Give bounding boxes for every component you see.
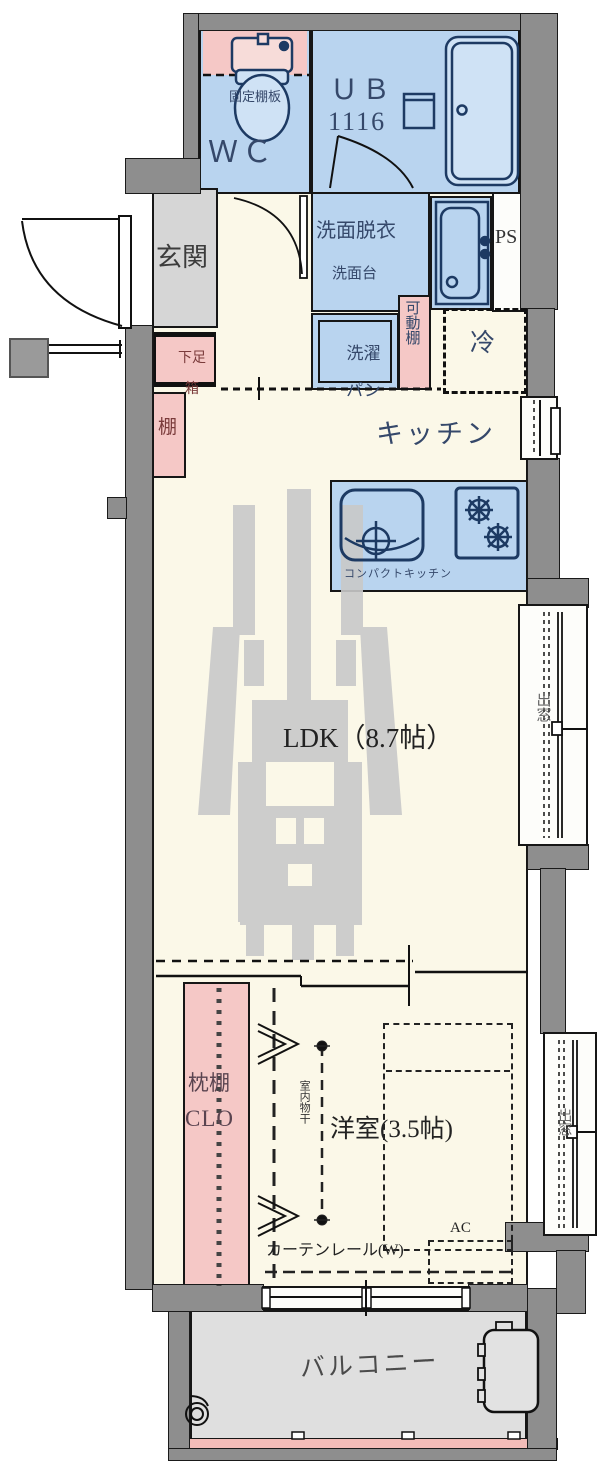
vanity-label: 洗面台 xyxy=(332,266,377,283)
bedroom-label: 洋室(3.5帖) xyxy=(330,1116,453,1144)
movable-shelf-label: 可動棚 xyxy=(403,300,420,388)
kitchen-label: キッチン xyxy=(376,420,496,450)
wall-right-1 xyxy=(527,308,555,398)
shoe-box-label: 下足 箱 xyxy=(158,336,212,413)
ub-label: ＵＢ xyxy=(330,76,394,107)
wall-balcony-right xyxy=(527,1288,557,1460)
meter-box xyxy=(10,339,48,377)
wall-entry-step xyxy=(125,158,201,194)
wall-top xyxy=(183,13,558,31)
vanity-unit xyxy=(430,196,492,310)
wall-bedroom-bottom-left xyxy=(152,1284,264,1312)
wall-bedroom-bottom-right xyxy=(468,1284,528,1312)
corridor-rail xyxy=(48,340,122,358)
floorplan: 固定棚板 ＵＢ 1116 ＷＣ 玄関 洗面脱衣 洗面台 PS 洗濯 パン 可動棚… xyxy=(0,0,600,1470)
curtain-rail-label: カーテンレール(W) xyxy=(266,1242,404,1260)
ub-size-label: 1116 xyxy=(328,108,386,137)
wall-left-main xyxy=(125,325,153,1290)
washroom xyxy=(311,192,430,312)
shoe-box-line2: 箱 xyxy=(185,382,199,397)
compact-kitchen-label: コンパクトキッチン xyxy=(344,568,452,580)
wall-balcony-left xyxy=(168,1288,190,1460)
closet-label: CLO xyxy=(185,1106,234,1131)
ps-label: PS xyxy=(495,226,517,248)
entrance-label: 玄関 xyxy=(156,244,208,273)
entry-door-panel xyxy=(119,216,131,328)
wall-right-down xyxy=(556,1250,586,1314)
ac-outline xyxy=(428,1240,513,1284)
laundry-pan-label: 洗濯 パン xyxy=(320,326,390,419)
bay-window-ldk-label: 出窓 xyxy=(534,692,551,722)
washroom-label: 洗面脱衣 xyxy=(316,220,396,242)
wall-right-top xyxy=(520,13,558,310)
pillow-shelf-label: 枕棚 xyxy=(188,1072,230,1095)
wall-left-upper xyxy=(183,13,199,165)
kitchen-window xyxy=(520,396,558,460)
bay-window-bedroom-label: 出窓 xyxy=(556,1108,571,1136)
bay-window-ldk xyxy=(518,604,588,846)
entry-door-arc xyxy=(22,221,122,326)
laundry-pan-line2: パン xyxy=(346,381,381,400)
wall-right-3 xyxy=(540,868,566,1034)
fridge-label: 冷 xyxy=(470,330,495,358)
fixed-shelf-label: 固定棚板 xyxy=(203,90,307,104)
shoe-box-line1: 下足 xyxy=(178,351,206,366)
closet-area xyxy=(183,982,250,1290)
wall-left-step xyxy=(107,497,127,519)
bed-pillow-line xyxy=(386,1070,510,1072)
wc-label: ＷＣ xyxy=(208,136,276,169)
shelf-label: 棚 xyxy=(158,418,177,439)
balcony-window xyxy=(262,1286,470,1310)
ac-label: AC xyxy=(450,1220,471,1237)
indoor-drying-label: 室内物干 xyxy=(298,1080,310,1124)
wc-fixed-shelf-area xyxy=(203,31,307,75)
laundry-pan-line1: 洗濯 xyxy=(347,344,381,363)
ldk-label: LDK（8.7帖） xyxy=(283,724,453,754)
wall-balcony-bottom xyxy=(168,1448,557,1461)
wall-right-2 xyxy=(527,458,560,580)
wall-right-below-bay1 xyxy=(527,844,589,870)
